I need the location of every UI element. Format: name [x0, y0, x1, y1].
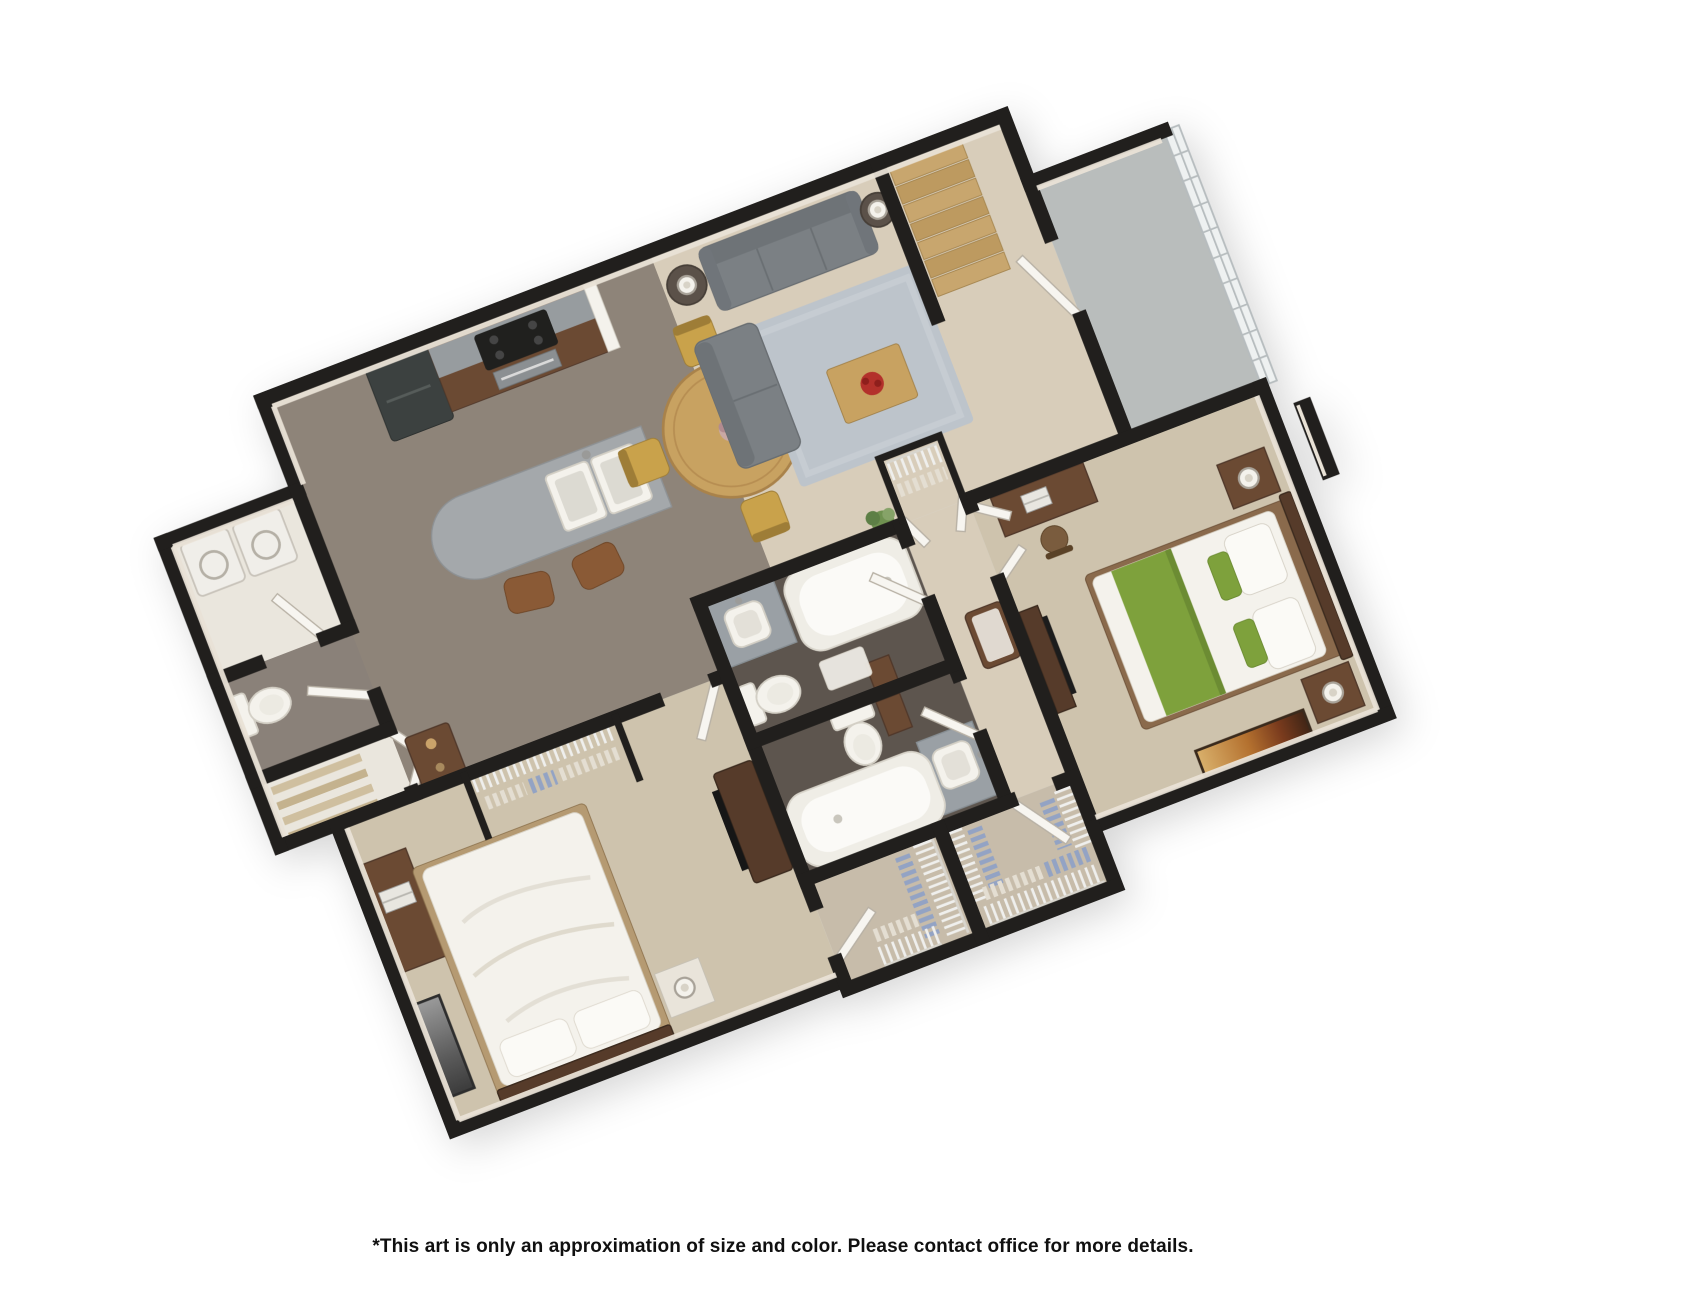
floor-plan-rendering — [86, 0, 1464, 1224]
disclaimer-text: *This art is only an approximation of si… — [372, 1236, 1193, 1258]
floor-plan-page: *This art is only an approximation of si… — [0, 0, 1704, 1294]
floor-plan-svg — [86, 0, 1464, 1224]
